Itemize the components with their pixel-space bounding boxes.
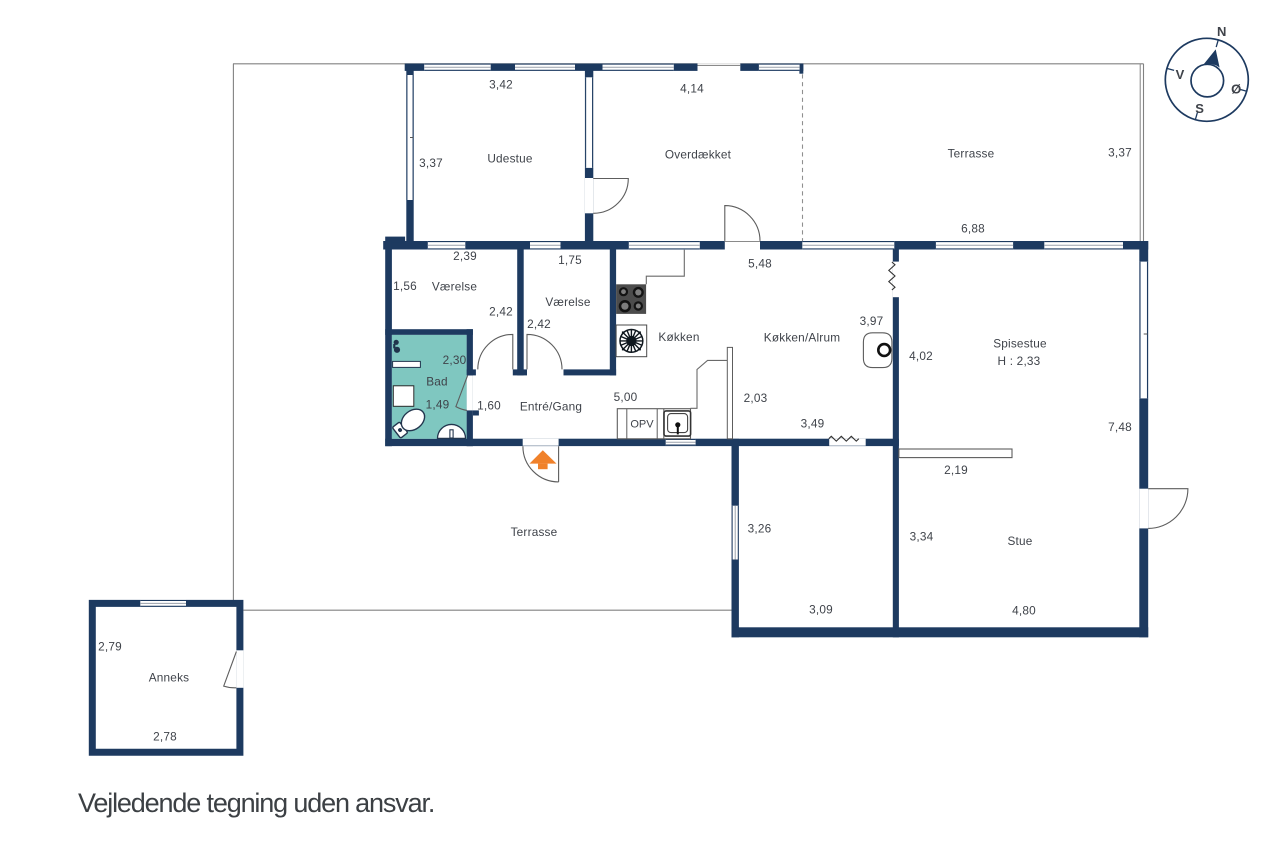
svg-text:Udestue: Udestue: [487, 152, 533, 166]
svg-text:2,79: 2,79: [98, 640, 122, 654]
svg-text:2,42: 2,42: [527, 317, 551, 331]
svg-text:Anneks: Anneks: [149, 671, 190, 685]
svg-text:1,60: 1,60: [477, 399, 501, 413]
svg-text:Ø: Ø: [1231, 82, 1241, 97]
svg-text:4,02: 4,02: [909, 349, 933, 363]
svg-text:3,09: 3,09: [809, 603, 833, 617]
svg-text:Terrasse: Terrasse: [511, 525, 558, 539]
svg-text:V: V: [1176, 67, 1185, 82]
svg-text:2,78: 2,78: [153, 730, 177, 744]
svg-text:Køkken/Alrum: Køkken/Alrum: [764, 331, 840, 345]
svg-text:Overdækket: Overdækket: [665, 148, 732, 162]
svg-text:3,26: 3,26: [748, 522, 772, 536]
svg-text:7,48: 7,48: [1108, 420, 1132, 434]
svg-text:Køkken: Køkken: [658, 330, 699, 344]
svg-text:5,48: 5,48: [748, 257, 772, 271]
svg-text:OPV: OPV: [630, 419, 654, 431]
svg-text:2,03: 2,03: [744, 391, 768, 405]
svg-text:S: S: [1195, 101, 1204, 116]
svg-text:Terrasse: Terrasse: [948, 147, 995, 161]
svg-text:5,00: 5,00: [614, 390, 638, 404]
svg-text:Stue: Stue: [1007, 534, 1032, 548]
svg-text:3,37: 3,37: [1108, 146, 1132, 160]
svg-text:N: N: [1217, 24, 1226, 39]
svg-text:1,75: 1,75: [558, 253, 582, 267]
svg-text:Spisestue: Spisestue: [993, 337, 1047, 351]
svg-text:Entré/Gang: Entré/Gang: [520, 400, 582, 414]
svg-text:3,97: 3,97: [860, 314, 884, 328]
svg-text:2,30: 2,30: [443, 353, 467, 367]
svg-text:H : 2,33: H : 2,33: [998, 354, 1041, 368]
svg-text:Værelse: Værelse: [545, 295, 591, 309]
svg-text:2,42: 2,42: [489, 305, 513, 319]
svg-text:3,37: 3,37: [419, 156, 443, 170]
svg-text:Bad: Bad: [426, 375, 448, 389]
svg-text:3,49: 3,49: [801, 417, 825, 431]
svg-text:3,34: 3,34: [910, 530, 934, 544]
svg-text:3,42: 3,42: [489, 78, 513, 92]
svg-text:Vejledende tegning uden ansvar: Vejledende tegning uden ansvar.: [78, 788, 434, 818]
svg-text:4,80: 4,80: [1012, 604, 1036, 618]
svg-text:2,19: 2,19: [944, 463, 968, 477]
svg-text:Værelse: Værelse: [432, 280, 478, 294]
svg-text:2,39: 2,39: [453, 249, 477, 263]
svg-text:4,14: 4,14: [680, 82, 704, 96]
svg-text:6,88: 6,88: [961, 222, 985, 236]
svg-text:1,49: 1,49: [426, 398, 450, 412]
svg-text:1,56: 1,56: [393, 279, 417, 293]
